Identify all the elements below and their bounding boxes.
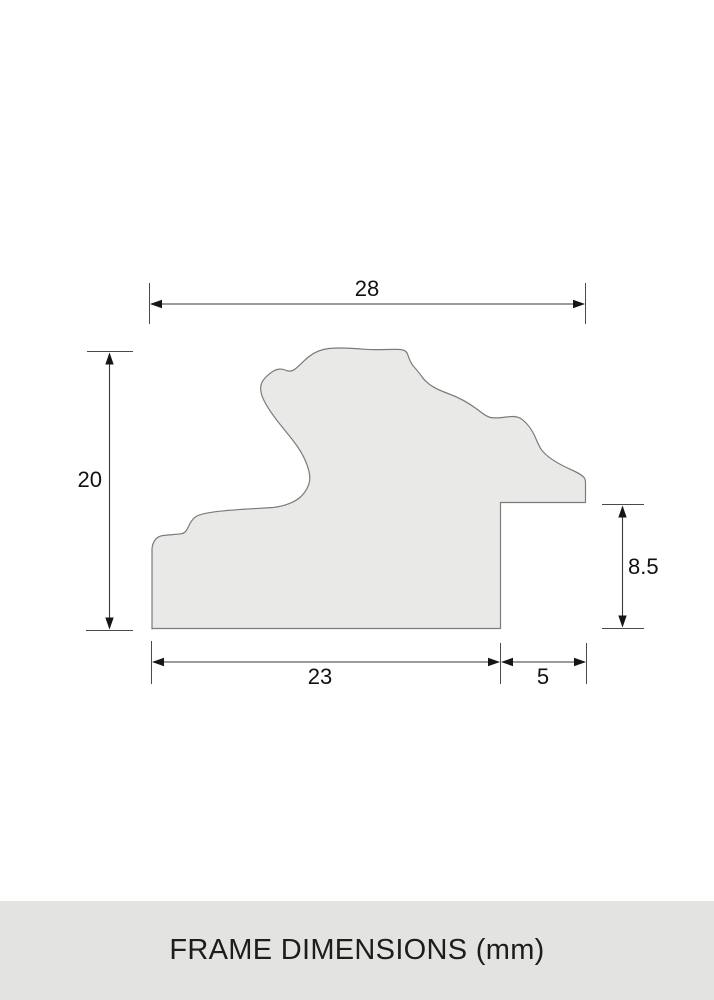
dimension-left-height: 20 (78, 352, 133, 631)
frame-profile-shape (152, 348, 586, 629)
footer-caption: FRAME DIMENSIONS (mm) (169, 934, 544, 967)
dimension-label-bottom-width: 23 (308, 664, 332, 689)
dimension-rabbet-height: 8.5 (602, 505, 659, 629)
footer-bar: FRAME DIMENSIONS (mm) (0, 901, 714, 1000)
dimension-label-rabbet-height: 8.5 (628, 554, 659, 579)
dimension-bottom-widths: 23 5 (152, 641, 587, 689)
dimension-label-top-width: 28 (355, 276, 379, 301)
dimension-top-width: 28 (150, 276, 586, 324)
frame-profile-diagram: 28 20 8.5 23 5 (0, 0, 714, 1000)
dimension-label-left-height: 20 (78, 467, 102, 492)
dimension-label-rabbet-width: 5 (537, 664, 549, 689)
frame-dimensions-page: 28 20 8.5 23 5 FRAME DIMENSIONS (0, 0, 714, 1000)
